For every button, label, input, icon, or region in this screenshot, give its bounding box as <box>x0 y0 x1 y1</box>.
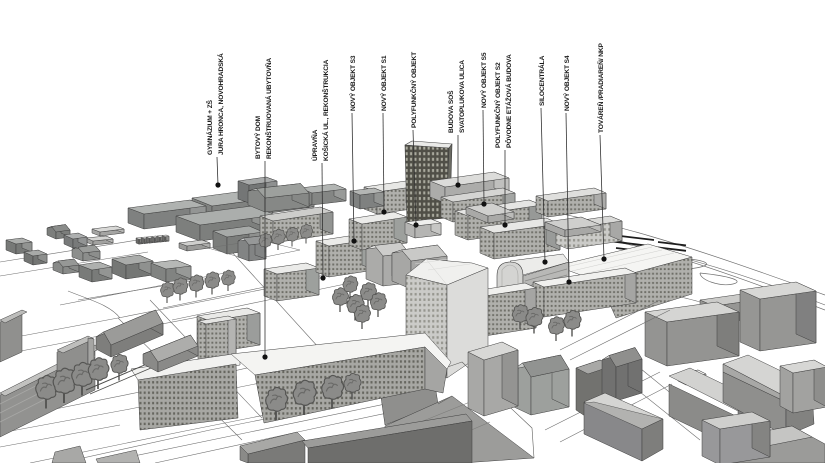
svg-text:NOVÝ OBJEKT S5: NOVÝ OBJEKT S5 <box>479 52 488 108</box>
svg-text:POLYFUNKČNÝ OBJEKT: POLYFUNKČNÝ OBJEKT <box>409 52 418 128</box>
svg-text:REKONŠTRUOVANÁ UBYTOVŇA: REKONŠTRUOVANÁ UBYTOVŇA <box>264 58 273 159</box>
svg-text:TOVÁREŇ /PRADIAREŇ/ NKP: TOVÁREŇ /PRADIAREŇ/ NKP <box>596 42 605 133</box>
svg-text:KOŠICKÁ UL., REKONŠTRUKCIA: KOŠICKÁ UL., REKONŠTRUKCIA <box>321 59 330 161</box>
svg-text:PÔVODNE ETÁŽOVÁ BUDOVA: PÔVODNE ETÁŽOVÁ BUDOVA <box>504 54 513 148</box>
svg-text:JURA HRONCA, NOVOHRADSKÁ: JURA HRONCA, NOVOHRADSKÁ <box>216 53 225 155</box>
svg-text:NOVÝ OBJEKT S4: NOVÝ OBJEKT S4 <box>562 55 571 111</box>
svg-text:SVATOPLUKOVA ULICA: SVATOPLUKOVA ULICA <box>459 60 466 133</box>
svg-text:BYTOVÝ DOM: BYTOVÝ DOM <box>253 115 262 159</box>
svg-text:NOVÝ OBJEKT S1: NOVÝ OBJEKT S1 <box>379 55 388 111</box>
svg-text:NOVÝ OBJEKT S3: NOVÝ OBJEKT S3 <box>348 55 357 111</box>
svg-text:SILOCENTRÁLA: SILOCENTRÁLA <box>537 55 546 106</box>
svg-text:GYMNÁZIUM + ZŠ: GYMNÁZIUM + ZŠ <box>205 99 214 155</box>
svg-text:POLYFUNKČNÝ OBJEKT S2: POLYFUNKČNÝ OBJEKT S2 <box>493 62 502 148</box>
svg-text:BUDOVA SOŠ: BUDOVA SOŠ <box>446 90 455 133</box>
svg-text:ÚPRAVŇA: ÚPRAVŇA <box>310 129 319 161</box>
